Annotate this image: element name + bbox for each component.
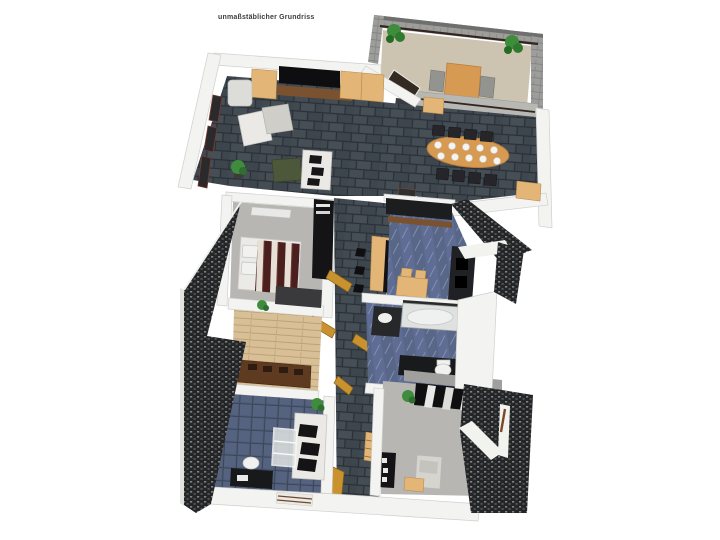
vanity-sink: [378, 313, 392, 323]
corner-shelf: [228, 80, 252, 106]
desk-item: [237, 475, 248, 481]
wall-side-right-white: [455, 291, 497, 392]
office-desk: [230, 468, 273, 489]
balcony-chair-right: [479, 76, 495, 98]
wall-dining-right: [536, 108, 552, 228]
wardrobe-shelf-1: [316, 204, 330, 207]
cooktop-1: [456, 258, 468, 270]
guest-bench-wood: [404, 477, 424, 492]
roof-gutter-left: [180, 288, 184, 506]
bathtub-basin: [407, 309, 453, 325]
bed-pillow-2: [241, 262, 257, 275]
wardrobe-shelf-2: [316, 211, 330, 214]
roof-right-lower: [494, 242, 524, 304]
tv-cabinet-left: [251, 69, 277, 99]
balcony-chair-left: [429, 70, 445, 92]
floor-plan: ♥: [0, 0, 720, 540]
office-chair: [243, 457, 259, 469]
ottoman-green: [272, 158, 302, 182]
dressing-room: [231, 310, 322, 401]
sideboard-right: [516, 181, 541, 201]
guest-sofa-cushion: [419, 460, 438, 474]
recliner: [262, 104, 293, 134]
cooktop-2: [455, 276, 467, 288]
bed-pillow-1: [242, 245, 258, 258]
floor-plan-page: unmaßstäblicher Grundriss: [0, 0, 720, 540]
sideboard-top: [423, 97, 444, 114]
glass-coffee-table: [272, 428, 297, 467]
